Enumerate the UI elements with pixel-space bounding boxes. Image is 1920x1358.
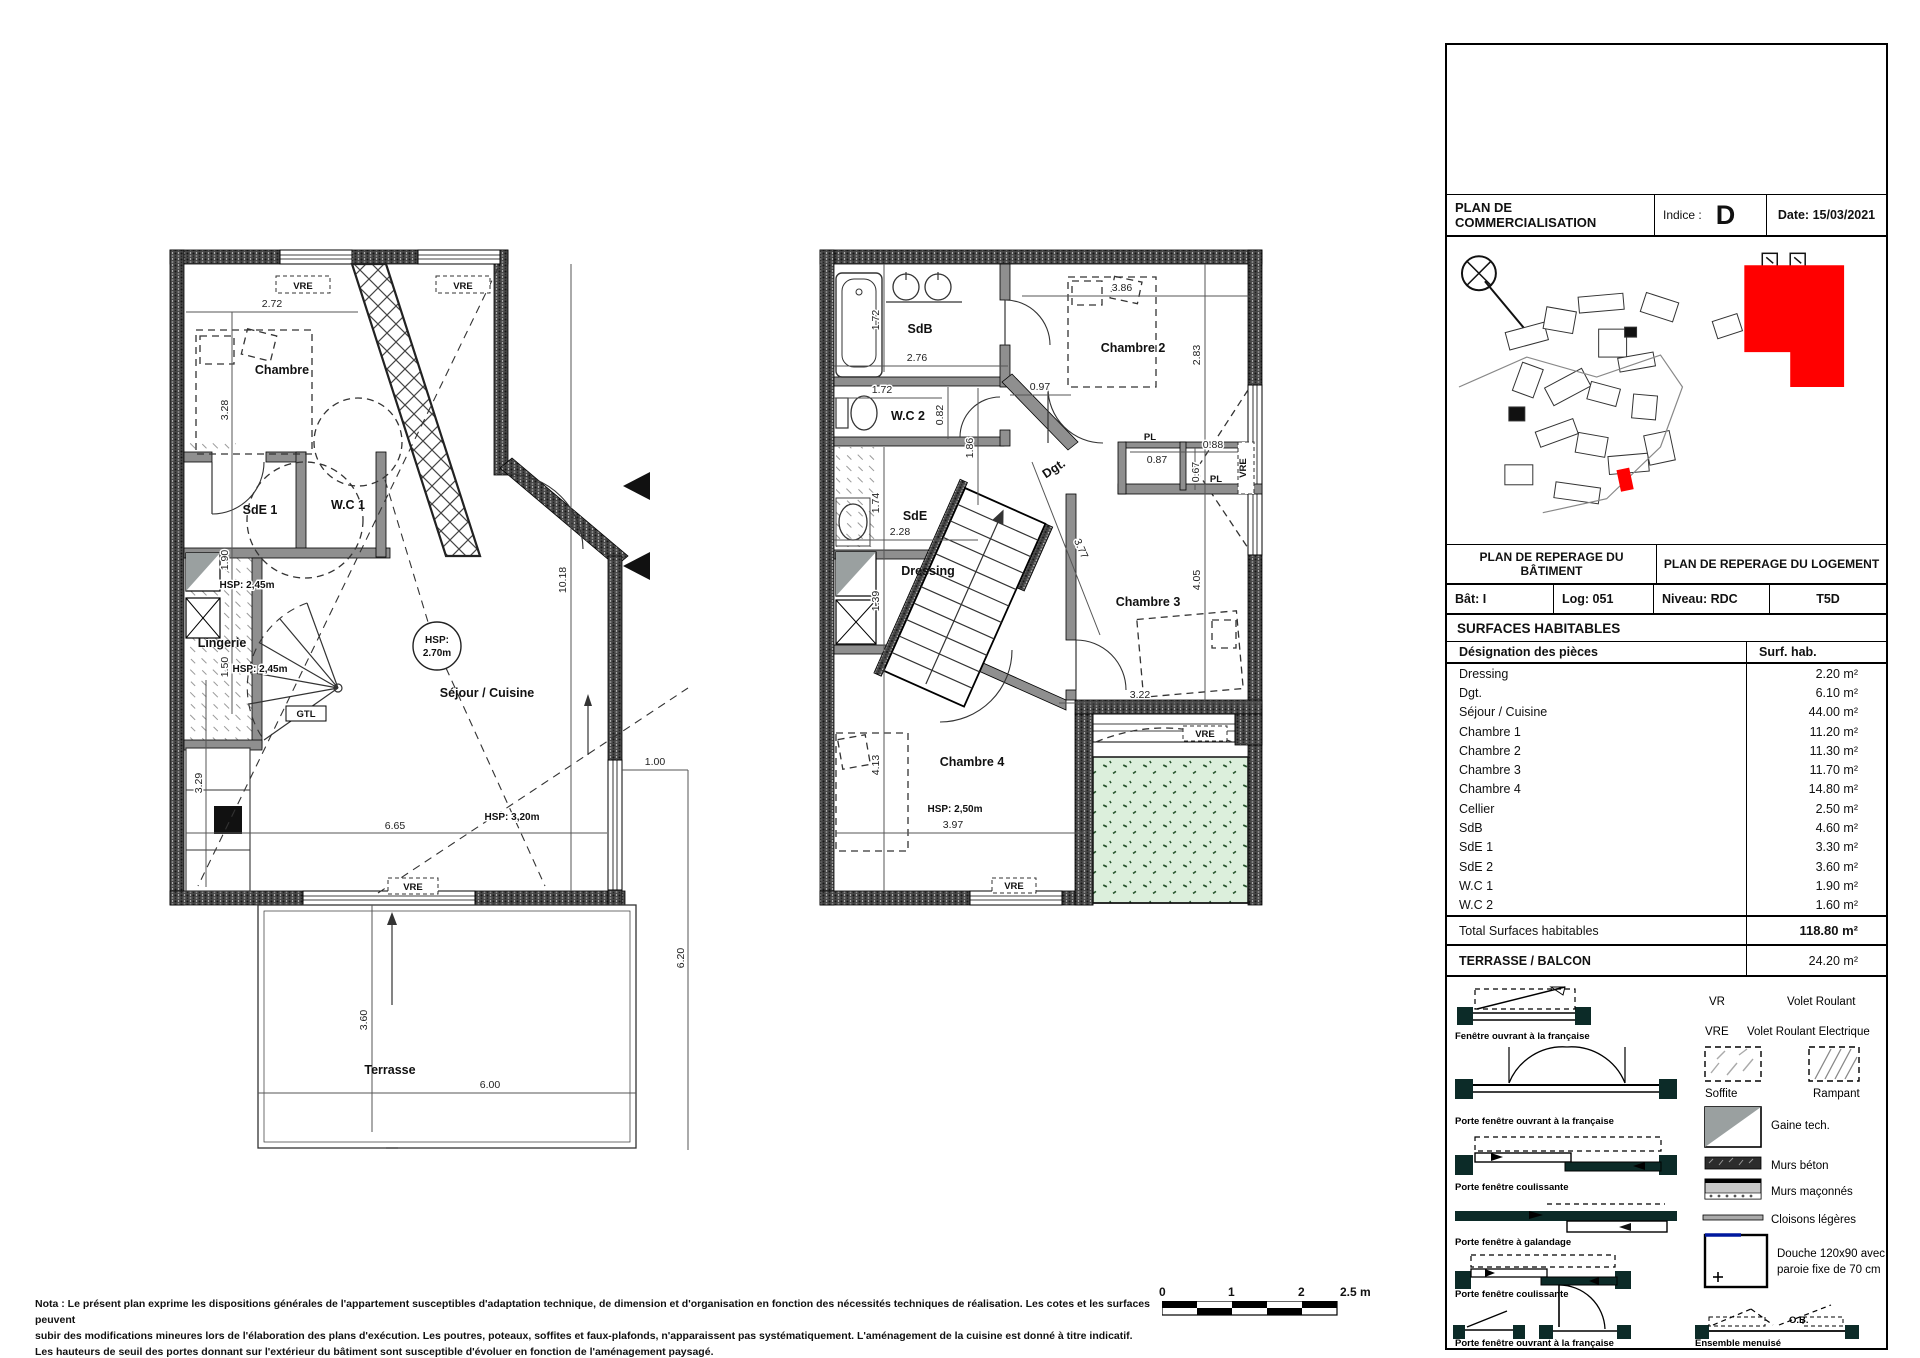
reperage-row: PLAN DE REPERAGE DU BÂTIMENT PLAN DE REP… [1447,545,1886,585]
log-cell: Log: 051 [1554,585,1654,613]
rdc-gtl: GTL [286,706,326,721]
room-sde1: SdE 1 [243,503,278,517]
hsp-245-2: HSP: 2,45m [232,664,287,675]
svg-text:VRE: VRE [453,281,473,292]
legend-gaine-label: Gaine tech. [1771,1120,1830,1132]
rdc-hsp-circle [413,622,461,670]
indice-value: D [1716,200,1736,231]
total-label: Total Surfaces habitables [1447,917,1747,944]
svg-text:VRE: VRE [1195,729,1215,740]
legend-label-0: Fenêtre ouvrant à la française [1455,1031,1590,1042]
surfaces-header: Désignation des pièces Surf. hab. [1447,642,1886,664]
scale-25: 2.5 m [1340,1285,1371,1299]
reperage-logement-label: PLAN DE REPERAGE DU LOGEMENT [1657,545,1886,583]
dim-w276: 2.76 [907,352,928,364]
dim-v405: 4.05 [1191,570,1203,591]
reperage-map [1447,237,1886,545]
room-chambre3: Chambre 3 [1116,595,1181,609]
indice-cell: Indice : D [1655,195,1767,235]
table-row: Dressing2.20 m² [1447,664,1886,683]
room-lingerie: Lingerie [198,636,247,650]
site-map [1447,237,1887,543]
room-chambre: Chambre [255,363,309,377]
room-wc2: W.C 2 [891,409,925,423]
etage-stair [874,479,1055,715]
dim-329: 3.29 [193,773,205,794]
room-wc1: W.C 1 [331,498,365,512]
table-row: Dgt.6.10 m² [1447,683,1886,702]
title-row: PLAN DE COMMERCIALISATION Indice : D Dat… [1447,195,1886,237]
total-row: Total Surfaces habitables 118.80 m² [1447,915,1886,946]
reperage-batiment-label: PLAN DE REPERAGE DU BÂTIMENT [1447,545,1657,583]
dim-100: 1.00 [645,756,666,768]
svg-text:VRE: VRE [1238,458,1249,478]
dim-1018: 10.18 [557,567,569,593]
dim-600: 6.00 [480,1079,501,1091]
rdc-terrace [258,905,636,1148]
legend-vre-label: Volet Roulant Electrique [1747,1026,1870,1038]
table-row: W.C 11.90 m² [1447,876,1886,895]
legend-symbol-pf-coulissante-1 [1455,1137,1677,1175]
table-row: Chambre 311.70 m² [1447,760,1886,779]
legend-label-1: Porte fenêtre ouvrant à la française [1455,1116,1614,1127]
dim-v082: 0.82 [934,405,946,426]
etage-terrace-green [1093,757,1248,903]
logo-box [1447,45,1886,195]
dim-v067: 0.67 [1190,462,1202,483]
svg-text:VRE: VRE [403,882,423,893]
terrasse-row: TERRASSE / BALCON 24.20 m² [1447,946,1886,977]
room-chambre2: Chambre 2 [1101,341,1166,355]
legend-soffite-swatch [1705,1047,1761,1081]
legend-murs-beton-label: Murs béton [1771,1160,1829,1172]
note-line-1: Nota : Le présent plan exprime les dispo… [35,1296,1185,1328]
legend-label-5: Porte fenêtre ouvrant à la française [1455,1338,1614,1349]
room-chambre4: Chambre 4 [940,755,1005,769]
room-sde: SdE [903,509,927,523]
scale-bar-graphic [1162,1301,1339,1317]
table-row: Séjour / Cuisine44.00 m² [1447,703,1886,722]
rdc-window-right [608,760,622,890]
info-row: Bât: I Log: 051 Niveau: RDC T5D [1447,585,1886,615]
rdc-rampant-band [352,264,480,556]
dim-150: 1.50 [219,657,231,678]
hsp-250: HSP: 2,50m [927,804,982,815]
hsp-320: HSP: 3,20m [484,812,539,823]
rdc-section-marks [623,472,650,580]
legend-graphics: Fenêtre ouvrant à la française Porte fen… [1447,977,1887,1349]
legend-vr-abbr: VR [1709,996,1725,1008]
pl-label-2: PL [1210,474,1222,485]
rdc-window-top-1 [280,250,352,264]
legend-label-4: Porte fenêtre coulissante [1455,1289,1569,1300]
dim-360: 3.60 [358,1010,370,1031]
svg-text:VRE: VRE [1004,881,1024,892]
room-sejour: Séjour / Cuisine [440,686,535,700]
dim-v413: 4.13 [870,755,882,776]
surfaces-table: Dressing2.20 m² Dgt.6.10 m² Séjour / Cui… [1447,664,1886,915]
rdc-hsp270-line2: 2.70m [423,648,451,659]
rdc-kitchen-counter [186,748,250,891]
table-row: Chambre 414.80 m² [1447,780,1886,799]
col-surface: Surf. hab. [1747,642,1886,662]
dim-w097: 0.97 [1030,381,1051,393]
legend-douche-label-1: Douche 120x90 avec [1777,1248,1885,1260]
table-row: Chambre 111.20 m² [1447,722,1886,741]
legend-symbol-ensemble [1695,1305,1859,1339]
indice-label: Indice : [1663,208,1702,222]
footer-note: Nota : Le présent plan exprime les dispo… [35,1296,1185,1358]
dim-v186: 1.86 [964,438,976,459]
doc-title: PLAN DE COMMERCIALISATION [1447,195,1655,235]
rdc-hsp270-line1: HSP: [425,635,449,646]
compass-icon [1462,256,1525,329]
legend-douche-label-2: paroie fixe de 70 cm [1777,1264,1881,1276]
legend-soffite-label: Soffite [1705,1088,1737,1100]
niveau-cell: Niveau: RDC [1654,585,1770,613]
dim-w172: 1.72 [872,384,893,396]
legend: Fenêtre ouvrant à la française Porte fen… [1447,977,1886,1349]
scale-bar: 0 1 2 2.5 m [1162,1285,1372,1321]
legend-symbol-pf-galandage [1455,1204,1677,1232]
dim-w386: 3.86 [1112,282,1133,294]
note-line-2: subir des modifications mineures lors de… [35,1328,1185,1344]
legend-symbol-pf-coulissante-2 [1455,1255,1631,1289]
dim-190: 1.90 [219,550,231,571]
col-designation: Désignation des pièces [1447,642,1747,662]
floor-plan-etage: 1.72 2.76 1.72 0.97 0.82 1.86 3.86 2.83 … [810,240,1285,920]
dim-620: 6.20 [675,948,687,969]
dim-v283: 2.83 [1191,345,1203,366]
date-cell: Date: 15/03/2021 [1767,195,1886,235]
dim-w087: 0.87 [1147,454,1168,466]
legend-douche-swatch [1705,1235,1767,1287]
scale-1: 1 [1228,1285,1235,1299]
table-row: Chambre 211.30 m² [1447,741,1886,760]
table-row: W.C 21.60 m² [1447,896,1886,915]
legend-murs-beton-swatch [1705,1157,1761,1169]
bat-cell: Bât: I [1447,585,1554,613]
dim-w322: 3.22 [1130,689,1151,701]
type-cell: T5D [1770,585,1886,613]
pl-label-1: PL [1144,432,1156,443]
legend-symbol-pf-francaise [1455,1047,1677,1099]
legend-label-2: Porte fenêtre coulissante [1455,1182,1569,1193]
dim-w397: 3.97 [943,819,964,831]
legend-vre-abbr: VRE [1705,1026,1729,1038]
legend-rampant-swatch [1809,1047,1859,1081]
terrasse-label: TERRASSE / BALCON [1447,946,1747,975]
legend-vr-label: Volet Roulant [1787,996,1856,1008]
dim-272: 2.72 [262,298,283,310]
dim-w228: 2.28 [890,526,911,538]
table-row: SdE 23.60 m² [1447,857,1886,876]
legend-murs-maconnes-swatch [1705,1179,1761,1199]
hsp-245-1: HSP: 2,45m [219,580,274,591]
room-dressing: Dressing [901,564,955,578]
legend-symbol-fenetre-francaise [1457,987,1591,1025]
dim-w088: 0.88 [1203,439,1224,451]
room-dgt: Dgt. [1040,456,1068,481]
legend-cloisons-label: Cloisons légères [1771,1214,1856,1226]
plan-sheet: HSP: 2.70m 2.72 3.28 1.90 1.50 3.29 6.65… [0,0,1920,1358]
terrasse-value: 24.20 m² [1747,946,1886,975]
dim-665: 6.65 [385,820,406,832]
rdc-window-top-2 [418,250,500,264]
legend-ob-label: O.B. [1789,1315,1809,1326]
room-terrasse: Terrasse [364,1063,415,1077]
scale-0: 0 [1159,1285,1166,1299]
dim-328: 3.28 [219,400,231,421]
svg-text:VRE: VRE [293,281,313,292]
building-highlight-red [1712,253,1844,387]
surfaces-title: SURFACES HABITABLES [1447,615,1886,642]
dim-v174: 1.74 [870,493,882,514]
table-row: Cellier2.50 m² [1447,799,1886,818]
title-block: PLAN DE COMMERCIALISATION Indice : D Dat… [1445,43,1888,1350]
legend-rampant-label: Rampant [1813,1088,1860,1100]
legend-cloisons-swatch [1703,1215,1763,1220]
site-buildings [1505,292,1679,503]
legend-label-3: Porte fenêtre à galandage [1455,1237,1571,1248]
svg-text:GTL: GTL [297,709,316,720]
room-sdb: SdB [908,322,933,336]
dim-v139: 1.39 [870,591,882,612]
scale-2: 2 [1298,1285,1305,1299]
total-value: 118.80 m² [1747,917,1886,944]
table-row: SdB4.60 m² [1447,818,1886,837]
table-row: SdE 13.30 m² [1447,838,1886,857]
legend-ensemble-label: Ensemble menuisé [1695,1338,1781,1349]
legend-gaine-swatch [1705,1107,1761,1147]
note-line-3: Les hauteurs de seuil des portes donnant… [35,1344,1185,1358]
floor-plan-rdc: HSP: 2.70m 2.72 3.28 1.90 1.50 3.29 6.65… [150,240,710,1155]
legend-murs-maconnes-label: Murs maçonnés [1771,1186,1853,1198]
dim-v172: 1.72 [870,310,882,331]
